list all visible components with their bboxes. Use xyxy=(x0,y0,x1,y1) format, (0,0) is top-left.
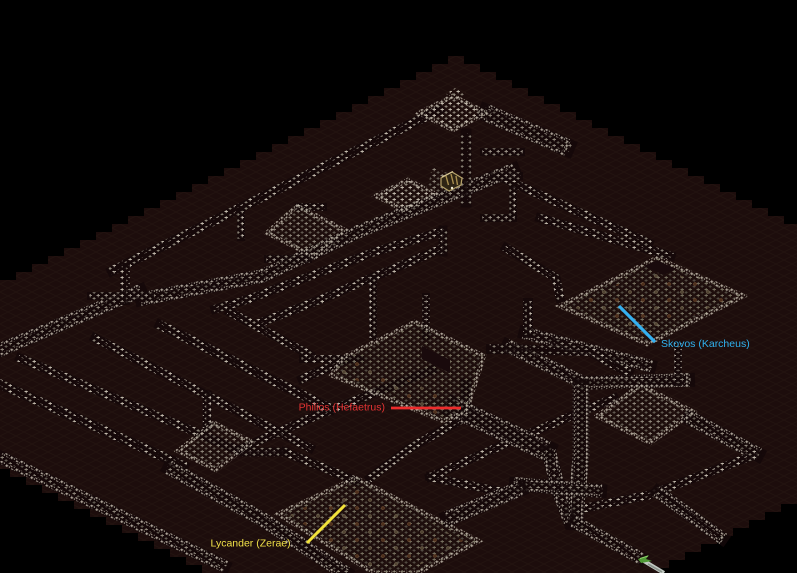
svg-text:Philios (Hefaetrus): Philios (Hefaetrus) xyxy=(299,402,385,414)
svg-text:Skovos (Karcheus): Skovos (Karcheus) xyxy=(661,338,750,350)
svg-text:Lycander (Zerae): Lycander (Zerae) xyxy=(211,538,291,550)
